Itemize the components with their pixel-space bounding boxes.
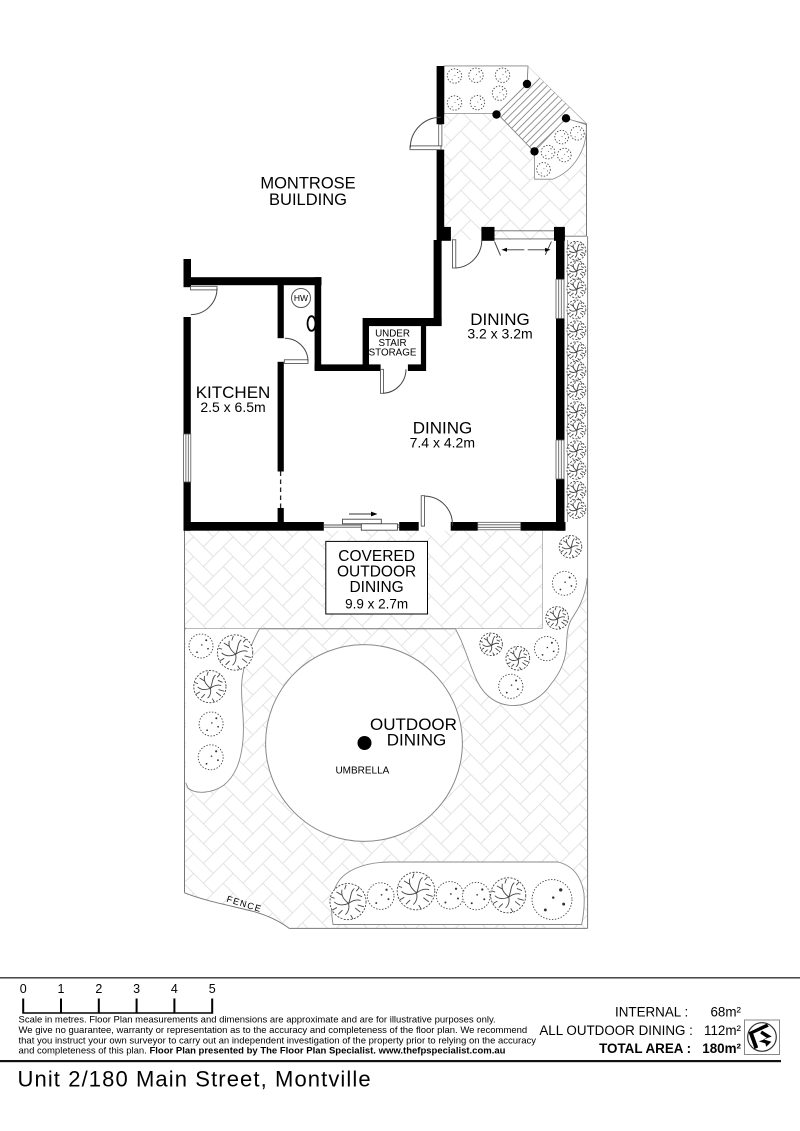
svg-text:5: 5 bbox=[209, 982, 216, 996]
svg-text:COVERED: COVERED bbox=[338, 548, 415, 565]
svg-text:Scale in metres. Floor Plan m: Scale in metres. Floor Plan measurements… bbox=[19, 1015, 496, 1026]
svg-text:ALL OUTDOOR DINING : 112m²: ALL OUTDOOR DINING : 112m² bbox=[539, 1023, 741, 1038]
svg-text:DINING: DINING bbox=[349, 579, 403, 596]
svg-text:1: 1 bbox=[58, 982, 65, 996]
svg-text:3.2 x 3.2m: 3.2 x 3.2m bbox=[467, 326, 532, 342]
svg-text:STORAGE: STORAGE bbox=[369, 347, 417, 358]
svg-text:9.9 x 2.7m: 9.9 x 2.7m bbox=[345, 597, 408, 612]
svg-text:TOTAL AREA : 180m²: TOTAL AREA : 180m² bbox=[599, 1041, 741, 1056]
svg-text:2.5 x 6.5m: 2.5 x 6.5m bbox=[200, 399, 265, 415]
svg-text:MONTROSE: MONTROSE bbox=[260, 175, 355, 193]
svg-text:Unit 2/180 Main Street, Montvi: Unit 2/180 Main Street, Montville bbox=[18, 1067, 372, 1092]
svg-text:OUTDOOR: OUTDOOR bbox=[337, 564, 416, 581]
svg-text:HW: HW bbox=[294, 293, 308, 303]
svg-text:2: 2 bbox=[95, 982, 102, 996]
svg-text:INTERNAL : 68m²: INTERNAL : 68m² bbox=[615, 1005, 742, 1020]
svg-text:BUILDING: BUILDING bbox=[269, 191, 347, 209]
svg-text:7.4 x 4.2m: 7.4 x 4.2m bbox=[410, 434, 475, 450]
svg-text:3: 3 bbox=[133, 982, 140, 996]
svg-text:and completeness of this plan.: and completeness of this plan. Floor Pla… bbox=[19, 1046, 506, 1057]
svg-text:DINING: DINING bbox=[387, 731, 447, 750]
svg-text:4: 4 bbox=[171, 982, 178, 996]
svg-text:0: 0 bbox=[20, 982, 27, 996]
svg-text:UMBRELLA: UMBRELLA bbox=[335, 766, 389, 777]
